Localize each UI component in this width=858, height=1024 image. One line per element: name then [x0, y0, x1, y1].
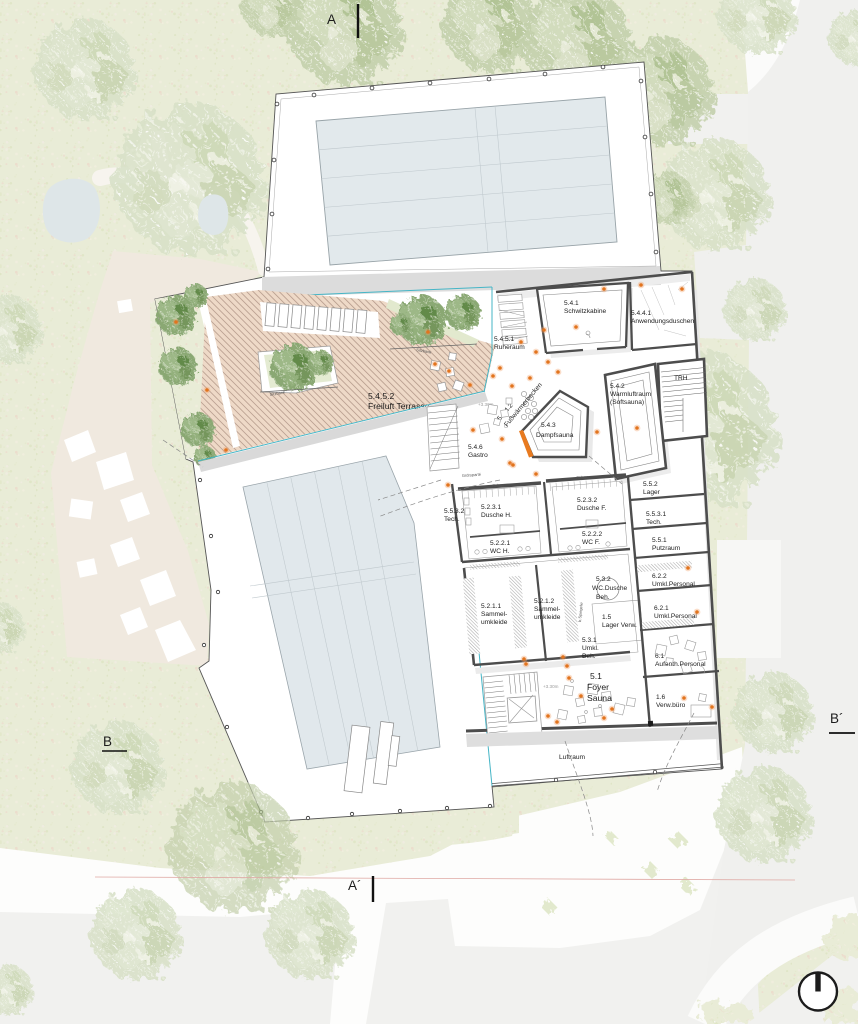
svg-text:Umkl.Personal: Umkl.Personal — [654, 613, 697, 620]
svg-text:Luftraum: Luftraum — [559, 754, 586, 761]
svg-text:Putzraum: Putzraum — [652, 545, 681, 552]
svg-text:Beh.: Beh. — [582, 653, 596, 660]
svg-text:5.1: 5.1 — [590, 671, 602, 681]
svg-text:5.4.5.1: 5.4.5.1 — [494, 336, 514, 343]
svg-text:5.2.3.1: 5.2.3.1 — [481, 504, 501, 511]
svg-text:Dusche F.: Dusche F. — [577, 505, 606, 512]
svg-text:Lager Verw.: Lager Verw. — [602, 622, 637, 629]
svg-text:WC.Dusche: WC.Dusche — [592, 585, 628, 592]
svg-text:5.5.2: 5.5.2 — [643, 481, 658, 488]
svg-text:5.5.3.2: 5.5.3.2 — [444, 508, 464, 515]
svg-text:Verw.büro: Verw.büro — [656, 702, 686, 709]
svg-text:5.5.3.1: 5.5.3.1 — [646, 511, 666, 518]
svg-text:Aufenth.Personal: Aufenth.Personal — [655, 661, 706, 668]
svg-text:5.4.5.2: 5.4.5.2 — [368, 391, 395, 401]
svg-text:5.2.1.1: 5.2.1.1 — [481, 603, 501, 610]
svg-text:6.2.1: 6.2.1 — [654, 605, 669, 612]
svg-text:Warmluftraum: Warmluftraum — [610, 391, 652, 398]
svg-text:(Softsauna): (Softsauna) — [610, 399, 644, 406]
svg-text:5.4.1: 5.4.1 — [564, 300, 579, 307]
svg-text:5.4.6: 5.4.6 — [468, 444, 483, 451]
svg-text:5.4.3: 5.4.3 — [541, 422, 556, 429]
svg-text:Sammel-: Sammel- — [534, 606, 560, 613]
svg-text:5.4.4.1: 5.4.4.1 — [631, 310, 651, 317]
svg-text:6.2.2: 6.2.2 — [652, 573, 667, 580]
svg-text:5.4.2: 5.4.2 — [610, 383, 625, 390]
svg-text:Umkl.Personal: Umkl.Personal — [652, 581, 695, 588]
svg-text:WC F.: WC F. — [582, 539, 600, 546]
svg-text:Ablage: Ablage — [492, 482, 506, 488]
svg-text:5.3.2: 5.3.2 — [596, 576, 611, 583]
svg-text:B: B — [103, 734, 112, 749]
svg-text:5.2.3.2: 5.2.3.2 — [577, 497, 597, 504]
svg-text:1.6: 1.6 — [656, 694, 665, 701]
svg-text:Dampfsauna: Dampfsauna — [536, 432, 574, 439]
svg-text:5.3.1: 5.3.1 — [582, 637, 597, 644]
svg-text:TRH: TRH — [674, 375, 688, 382]
svg-text:1.5: 1.5 — [602, 614, 611, 621]
svg-text:Lager: Lager — [643, 489, 661, 496]
svg-text:Dusche H.: Dusche H. — [481, 512, 512, 519]
svg-text:Tech.: Tech. — [646, 519, 662, 526]
svg-text:Gastro: Gastro — [468, 452, 488, 459]
svg-text:WC H.: WC H. — [490, 548, 510, 555]
svg-text:umkleide: umkleide — [481, 619, 508, 626]
svg-text:Sauna: Sauna — [587, 693, 612, 703]
svg-text:5.2.2.1: 5.2.2.1 — [490, 540, 510, 547]
svg-text:Foyer: Foyer — [587, 682, 609, 692]
svg-text:5.5.1: 5.5.1 — [652, 537, 667, 544]
svg-text:Anwendungsduschen: Anwendungsduschen — [631, 318, 694, 325]
svg-text:5.2.2.2: 5.2.2.2 — [582, 531, 602, 538]
svg-text:5.2.1.2: 5.2.1.2 — [534, 598, 554, 605]
svg-text:Schwitzkabine: Schwitzkabine — [564, 308, 606, 315]
svg-text:Beh.: Beh. — [596, 594, 610, 601]
svg-text:A: A — [327, 12, 336, 27]
svg-text:Sammel-: Sammel- — [481, 611, 507, 618]
svg-text:Tech.: Tech. — [444, 516, 460, 523]
svg-text:A´: A´ — [348, 878, 362, 893]
svg-text:umkleide: umkleide — [534, 614, 561, 621]
svg-text:B´: B´ — [830, 711, 844, 726]
svg-text:Ablage: Ablage — [576, 474, 590, 480]
svg-text:+3.30m: +3.30m — [543, 684, 559, 689]
svg-text:Umkl.: Umkl. — [582, 645, 599, 652]
